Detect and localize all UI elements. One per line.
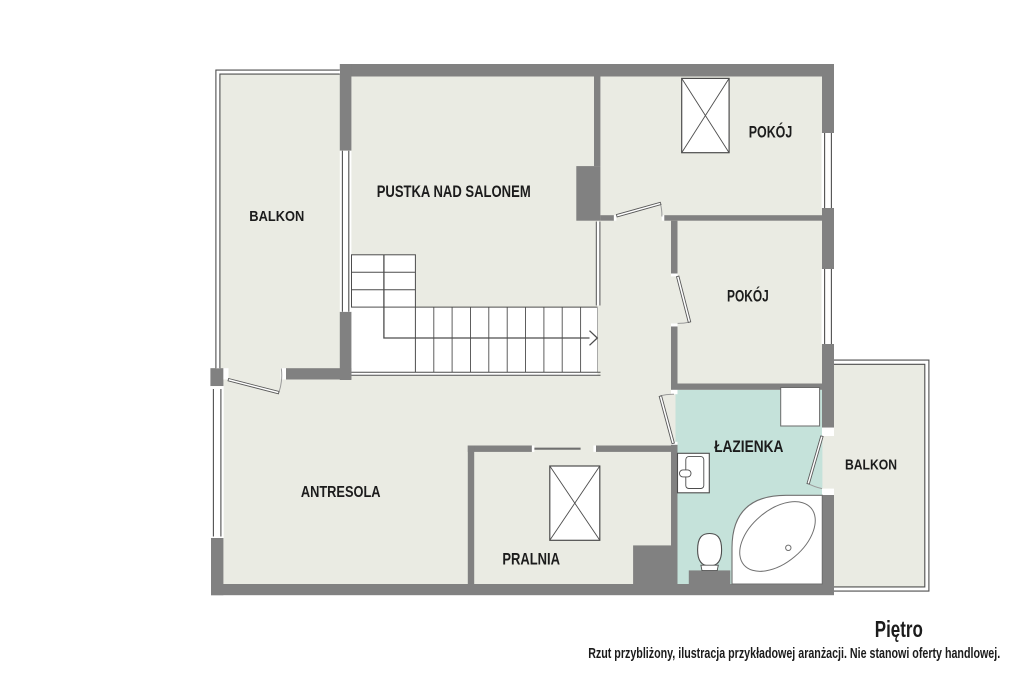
svg-text:ANTRESOLA: ANTRESOLA <box>301 484 381 501</box>
svg-text:Rzut przybliżony, ilustracja p: Rzut przybliżony, ilustracja przykładowe… <box>588 646 1000 662</box>
svg-text:BALKON: BALKON <box>249 208 304 225</box>
svg-text:Piętro: Piętro <box>875 616 923 642</box>
svg-text:POKÓJ: POKÓJ <box>727 286 769 305</box>
svg-text:PRALNIA: PRALNIA <box>502 551 560 569</box>
svg-text:PUSTKA NAD SALONEM: PUSTKA NAD SALONEM <box>377 183 531 201</box>
svg-text:ŁAZIENKA: ŁAZIENKA <box>714 438 783 456</box>
svg-text:POKÓJ: POKÓJ <box>749 123 793 142</box>
svg-text:BALKON: BALKON <box>845 457 897 474</box>
